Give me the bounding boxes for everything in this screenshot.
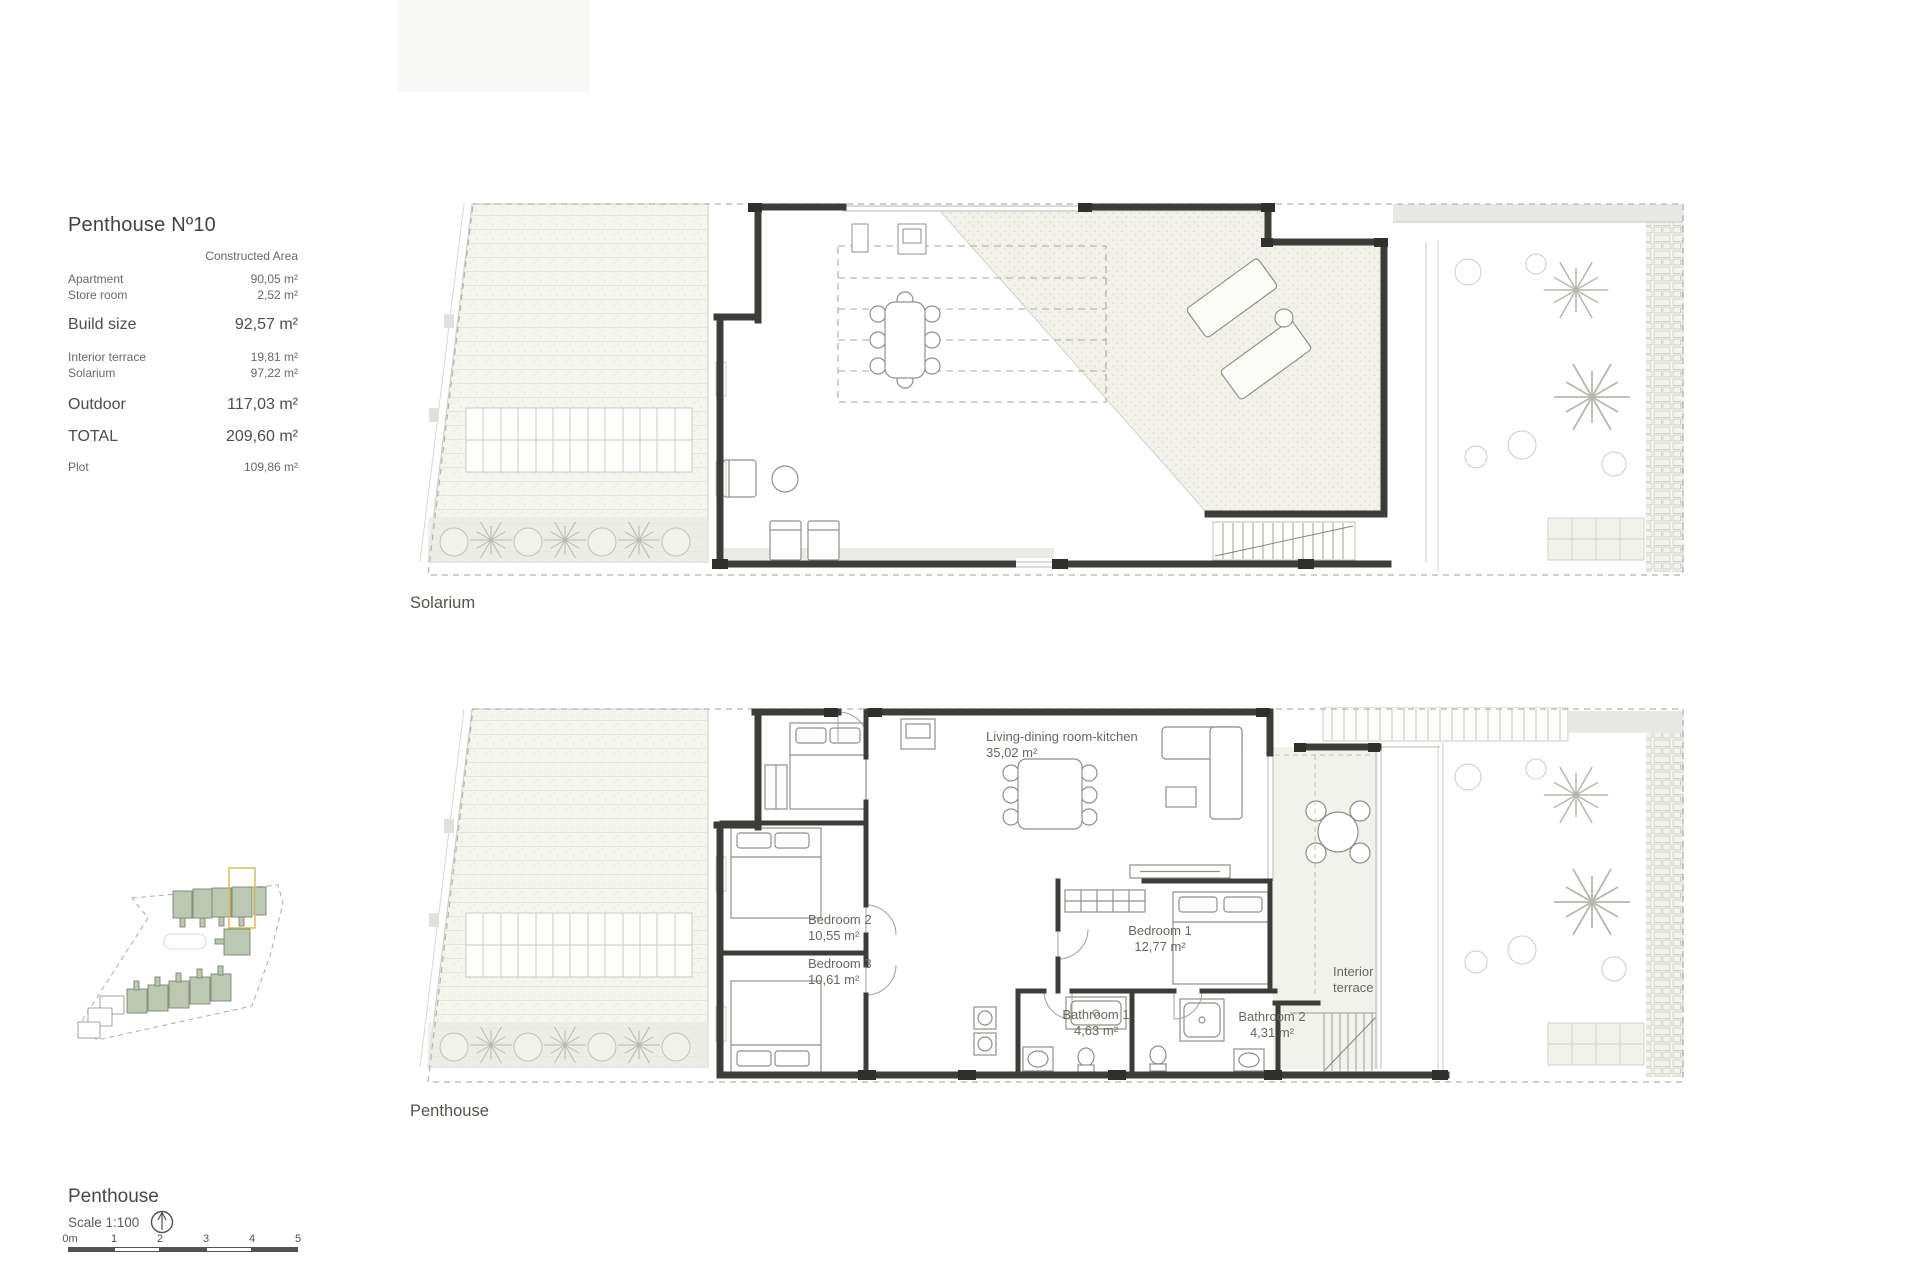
site-buildings-bottom-row bbox=[127, 966, 231, 1013]
scale-label: Scale 1:100 bbox=[68, 1215, 139, 1230]
penthouse-floor-plan: Living-dining room-kitchen 35,02 m² Bedr… bbox=[418, 707, 1688, 1087]
north-arrow-icon bbox=[148, 1208, 176, 1236]
table-row: Solarium97,22 m² bbox=[68, 365, 298, 381]
lounge-furniture bbox=[723, 460, 839, 560]
table-row: Interior terrace19,81 m² bbox=[68, 349, 298, 365]
stairs bbox=[1213, 522, 1355, 560]
room-label-bathroom1: Bathroom 1 4,63 m² bbox=[1054, 1007, 1138, 1039]
table-row: Plot109,86 m² bbox=[68, 459, 298, 475]
table-row: Apartment90,05 m² bbox=[68, 271, 298, 287]
dining-table bbox=[870, 292, 940, 388]
room-label-living: Living-dining room-kitchen 35,02 m² bbox=[986, 729, 1138, 761]
site-pool bbox=[164, 934, 206, 949]
site-location-plan bbox=[60, 856, 300, 1081]
solarium-floor-plan bbox=[418, 202, 1688, 582]
scale-bar-segments bbox=[68, 1247, 298, 1252]
site-building-middle bbox=[215, 929, 250, 955]
penthouse-floor-plan-svg bbox=[418, 707, 1688, 1087]
floor-plan-sheet: Penthouse Nº10 Constructed Area Apartmen… bbox=[0, 0, 1920, 1280]
solarium-deck bbox=[940, 211, 1384, 514]
penthouse-caption: Penthouse bbox=[410, 1102, 489, 1121]
table-row: Store room2,52 m² bbox=[68, 287, 298, 303]
column-header: Constructed Area bbox=[68, 249, 298, 263]
scale-bar-numbers: 0m 1 2 3 4 5 bbox=[68, 1233, 308, 1245]
site-buildings-top-row bbox=[173, 887, 266, 927]
faded-header-artifact bbox=[398, 0, 590, 92]
table-row: Build size92,57 m² bbox=[68, 315, 298, 335]
room-label-bedroom1: Bedroom 1 12,77 m² bbox=[1116, 923, 1204, 955]
exterior-stair-band bbox=[1323, 707, 1683, 741]
table-row: TOTAL209,60 m² bbox=[68, 427, 298, 447]
solarium-caption: Solarium bbox=[410, 594, 475, 613]
room-label-bathroom2: Bathroom 2 4,31 m² bbox=[1230, 1009, 1314, 1041]
area-summary-panel: Penthouse Nº10 Constructed Area Apartmen… bbox=[68, 214, 298, 475]
room-label-interior-terrace: Interior terrace bbox=[1333, 964, 1373, 996]
solarium-floor-plan-svg bbox=[418, 202, 1688, 582]
outdoor-kitchen bbox=[852, 224, 926, 254]
scale-bar: 0m 1 2 3 4 5 bbox=[68, 1233, 308, 1257]
upper-walkway bbox=[1393, 204, 1683, 222]
window-lines bbox=[843, 206, 1088, 211]
footer-plan-title: Penthouse bbox=[68, 1186, 159, 1208]
room-label-bedroom2: Bedroom 2 10,55 m² bbox=[808, 912, 872, 944]
room-label-bedroom3: Bedroom 3 10,61 m² bbox=[808, 956, 872, 988]
page-title: Penthouse Nº10 bbox=[68, 214, 298, 237]
table-row: Outdoor117,03 m² bbox=[68, 395, 298, 415]
